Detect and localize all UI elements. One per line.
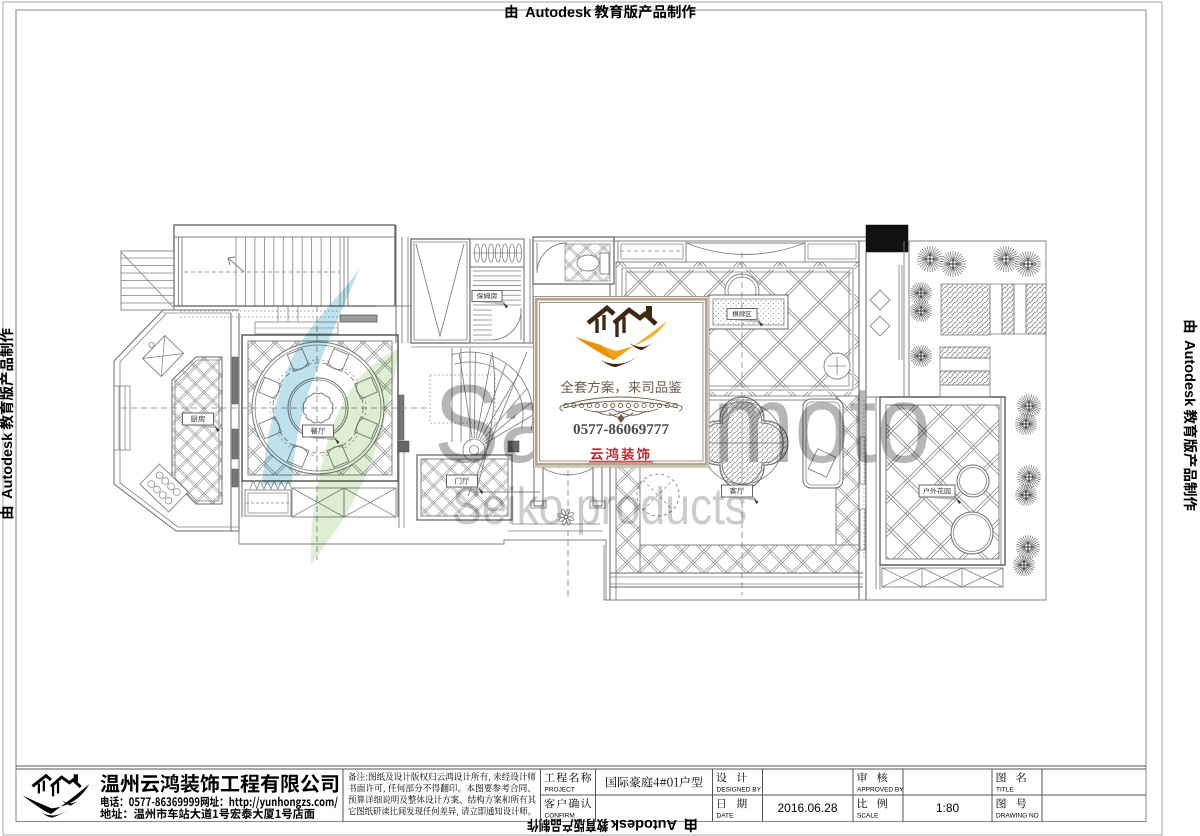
- svg-text:CONFIRM: CONFIRM: [545, 813, 575, 820]
- svg-text:DESIGNED BY: DESIGNED BY: [717, 787, 762, 794]
- svg-text:TITLE: TITLE: [996, 787, 1014, 794]
- svg-text:DATE: DATE: [717, 813, 735, 820]
- svg-text:APPROVED BY: APPROVED BY: [857, 787, 904, 794]
- svg-text:PROJECT: PROJECT: [545, 787, 575, 794]
- svg-text:1:80: 1:80: [936, 801, 960, 815]
- svg-text:2016.06.28: 2016.06.28: [777, 801, 837, 815]
- svg-text:DRAWING NO: DRAWING NO: [996, 813, 1039, 820]
- svg-text:SCALE: SCALE: [857, 813, 879, 820]
